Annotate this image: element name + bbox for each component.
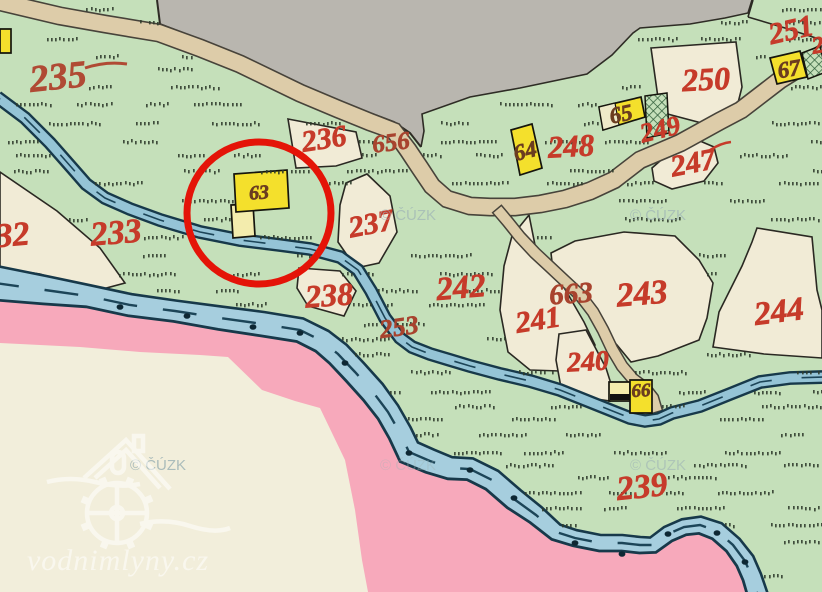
svg-text:238: 238 — [303, 275, 354, 314]
svg-text:663: 663 — [548, 277, 594, 312]
svg-text:233: 233 — [88, 212, 143, 253]
svg-text:235: 235 — [26, 53, 88, 101]
svg-text:© ČÚZK: © ČÚZK — [630, 207, 686, 224]
svg-text:243: 243 — [614, 273, 669, 314]
svg-text:© ČÚZK: © ČÚZK — [380, 207, 436, 224]
svg-text:242: 242 — [434, 268, 487, 308]
svg-text:66: 66 — [631, 380, 652, 402]
svg-text:240: 240 — [565, 345, 610, 378]
svg-text:vodnimlyny.cz: vodnimlyny.cz — [27, 544, 209, 577]
svg-text:© ČÚZK: © ČÚZK — [630, 457, 686, 474]
svg-text:248: 248 — [546, 127, 596, 164]
svg-text:656: 656 — [371, 127, 412, 158]
svg-text:244: 244 — [751, 291, 806, 333]
svg-text:63: 63 — [248, 181, 269, 204]
svg-text:232: 232 — [0, 215, 31, 256]
svg-text:253: 253 — [377, 310, 421, 344]
svg-text:© ČÚZK: © ČÚZK — [380, 457, 436, 474]
svg-text:250: 250 — [680, 60, 731, 99]
